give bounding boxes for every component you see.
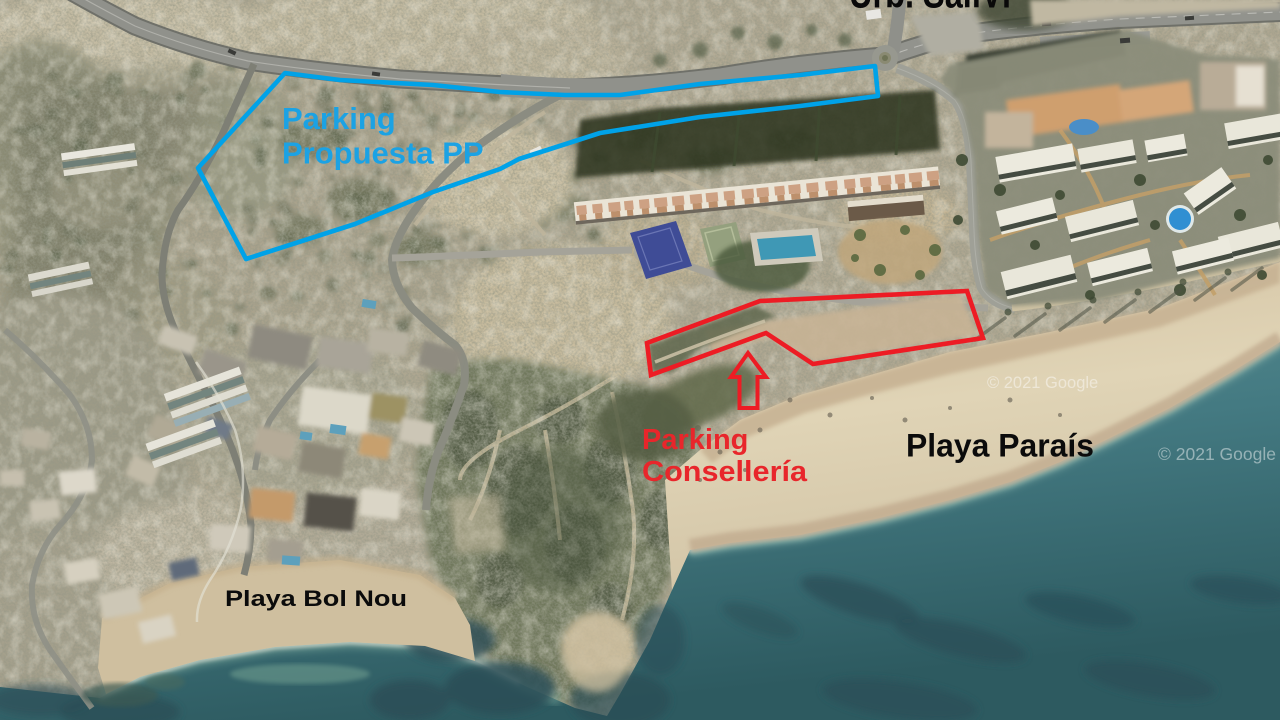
svg-text:Consellería: Consellería [642,456,808,488]
svg-text:Playa Paraís: Playa Paraís [906,428,1094,464]
svg-text:© 2021 Google: © 2021 Google [987,374,1098,392]
svg-text:Parking: Parking [282,101,396,136]
svg-text:Parking: Parking [642,424,748,456]
svg-text:© 2021 Google: © 2021 Google [1158,444,1276,464]
svg-text:Propuesta PP: Propuesta PP [282,136,484,171]
svg-text:Playa Bol Nou: Playa Bol Nou [225,586,407,611]
